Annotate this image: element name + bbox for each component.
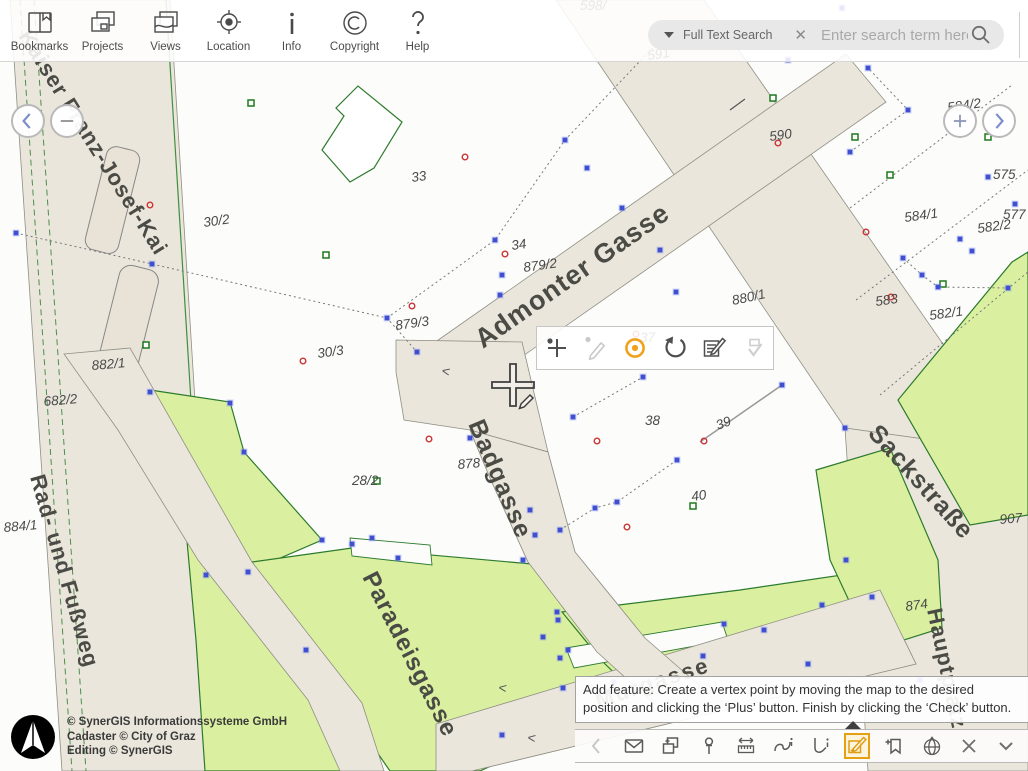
windows-icon: [88, 8, 118, 38]
svg-text:38: 38: [645, 413, 661, 428]
close-toolbar-button[interactable]: [956, 733, 982, 759]
svg-text:33: 33: [410, 168, 427, 185]
svg-text:28/2: 28/2: [351, 473, 379, 488]
plus-icon: [945, 106, 975, 136]
svg-text:34: 34: [510, 236, 527, 253]
toolbar-item-location[interactable]: Location: [197, 0, 260, 68]
map-sheet-icon: [151, 8, 181, 38]
toolbar-label: Location: [207, 41, 250, 53]
sketch-pencil-button-disabled[interactable]: [580, 332, 612, 364]
app-window: < < < 3330/234879/2879/330/328/287838394…: [0, 0, 1028, 771]
svg-text:30/3: 30/3: [316, 342, 345, 361]
book-icon: [25, 8, 55, 38]
area-info-icon: [809, 735, 831, 757]
tools-toolbar: [575, 729, 1028, 763]
pan-left-button[interactable]: [11, 104, 45, 138]
pin-icon: [698, 735, 720, 757]
edit-note-icon: [700, 334, 728, 362]
line-info-button[interactable]: [770, 733, 796, 759]
pan-right-button[interactable]: [982, 104, 1016, 138]
svg-text:884/1: 884/1: [3, 517, 38, 535]
pin-marker-button[interactable]: [696, 733, 722, 759]
svg-text:907: 907: [999, 510, 1023, 527]
add-vertex-button[interactable]: [541, 332, 573, 364]
minus-icon: [52, 106, 82, 136]
flag-plus-icon: [883, 735, 905, 757]
pencil-icon: [582, 334, 610, 362]
copyright-icon: [340, 8, 370, 38]
attribution-line: Editing © SynerGIS: [67, 744, 287, 759]
toolbar-label: Views: [150, 41, 180, 53]
measure-button[interactable]: [733, 733, 759, 759]
toolbar-item-info[interactable]: Info: [260, 0, 323, 68]
tool-hint-tooltip: Add feature: Create a vertex point by mo…: [575, 676, 1028, 723]
edit-attributes-button[interactable]: [698, 332, 730, 364]
attribution-line: © SynerGIS Informationssysteme GmbH: [67, 715, 287, 730]
chevron-down-icon: [995, 735, 1017, 757]
copy-windows-icon: [660, 735, 682, 757]
map-canvas[interactable]: < < < 3330/234879/2879/330/328/287838394…: [0, 0, 1028, 771]
svg-text:879/3: 879/3: [394, 313, 430, 333]
toolbar-item-help[interactable]: Help: [386, 0, 449, 68]
feature-edit-toolbar: [536, 326, 774, 370]
toolbar-label: Projects: [82, 41, 124, 53]
snap-point-button-active[interactable]: [619, 332, 651, 364]
snap-point-icon: [621, 334, 649, 362]
svg-text:882/1: 882/1: [91, 355, 126, 373]
attribution-line: Cadaster © City of Graz: [67, 730, 287, 745]
edit-pencil-icon: [846, 735, 868, 757]
envelope-icon: [623, 735, 645, 757]
email-button[interactable]: [621, 733, 647, 759]
search-input[interactable]: [819, 26, 970, 45]
collapse-toolbar-button[interactable]: [993, 733, 1019, 759]
search-icon[interactable]: [970, 24, 992, 46]
ruler-arrows-icon: [735, 735, 757, 757]
edit-redlining-button-active[interactable]: [844, 733, 870, 759]
svg-text:30/2: 30/2: [202, 211, 231, 230]
polyline-info-icon: [772, 735, 794, 757]
svg-text:584/1: 584/1: [903, 205, 939, 225]
info-icon: [277, 8, 307, 38]
attribution-text: © SynerGIS Informationssysteme GmbH Cada…: [67, 715, 287, 760]
globe-icon: [921, 735, 943, 757]
copy-compare-button[interactable]: [658, 733, 684, 759]
bookmark-add-button[interactable]: [881, 733, 907, 759]
svg-text:575: 575: [993, 167, 1016, 182]
zoom-in-button[interactable]: [943, 104, 977, 138]
close-icon: [958, 735, 980, 757]
area-info-button[interactable]: [807, 733, 833, 759]
svg-text:582/1: 582/1: [928, 303, 964, 323]
toolbar-item-views[interactable]: Views: [134, 0, 197, 68]
tooltip-text: Add feature: Create a vertex point by mo…: [583, 682, 1011, 715]
toolbar-label: Copyright: [330, 41, 379, 53]
chevron-left-icon: [586, 735, 608, 757]
check-icon: [739, 334, 767, 362]
undo-button[interactable]: [659, 332, 691, 364]
svg-text:582/2: 582/2: [976, 216, 1012, 236]
map-attribution: © SynerGIS Informationssysteme GmbH Cada…: [10, 714, 287, 760]
finish-check-button-disabled[interactable]: [737, 332, 769, 364]
building-outline: [322, 86, 402, 182]
svg-text:583: 583: [874, 291, 899, 309]
question-icon: [403, 8, 433, 38]
toolbar-item-bookmarks[interactable]: Bookmarks: [8, 0, 71, 68]
chevron-left-icon: [13, 106, 43, 136]
svg-text:590: 590: [768, 126, 793, 144]
clear-search-icon[interactable]: ✕: [794, 26, 807, 44]
toolbar-item-projects[interactable]: Projects: [71, 0, 134, 68]
search-bar: Full Text Search ✕: [648, 20, 1004, 50]
north-arrow-logo: [10, 714, 56, 760]
globe-button[interactable]: [919, 733, 945, 759]
toolbar-label: Bookmarks: [11, 41, 69, 53]
target-icon: [214, 8, 244, 38]
svg-text:682/2: 682/2: [43, 391, 78, 409]
toolbar-label: Info: [282, 41, 301, 53]
panel-divider: [1019, 12, 1020, 58]
chevron-down-icon[interactable]: [664, 32, 674, 38]
add-vertex-icon: [543, 334, 571, 362]
undo-icon: [661, 334, 689, 362]
toolbar-label: Help: [406, 41, 430, 53]
svg-text:40: 40: [690, 487, 707, 504]
toolbar-expand-handle[interactable]: [845, 721, 861, 729]
chevron-right-icon: [984, 106, 1014, 136]
previous-tools-button[interactable]: [584, 733, 610, 759]
toolbar-item-copyright[interactable]: Copyright: [323, 0, 386, 68]
zoom-out-button[interactable]: [50, 104, 84, 138]
search-mode-selector[interactable]: Full Text Search: [683, 28, 772, 42]
